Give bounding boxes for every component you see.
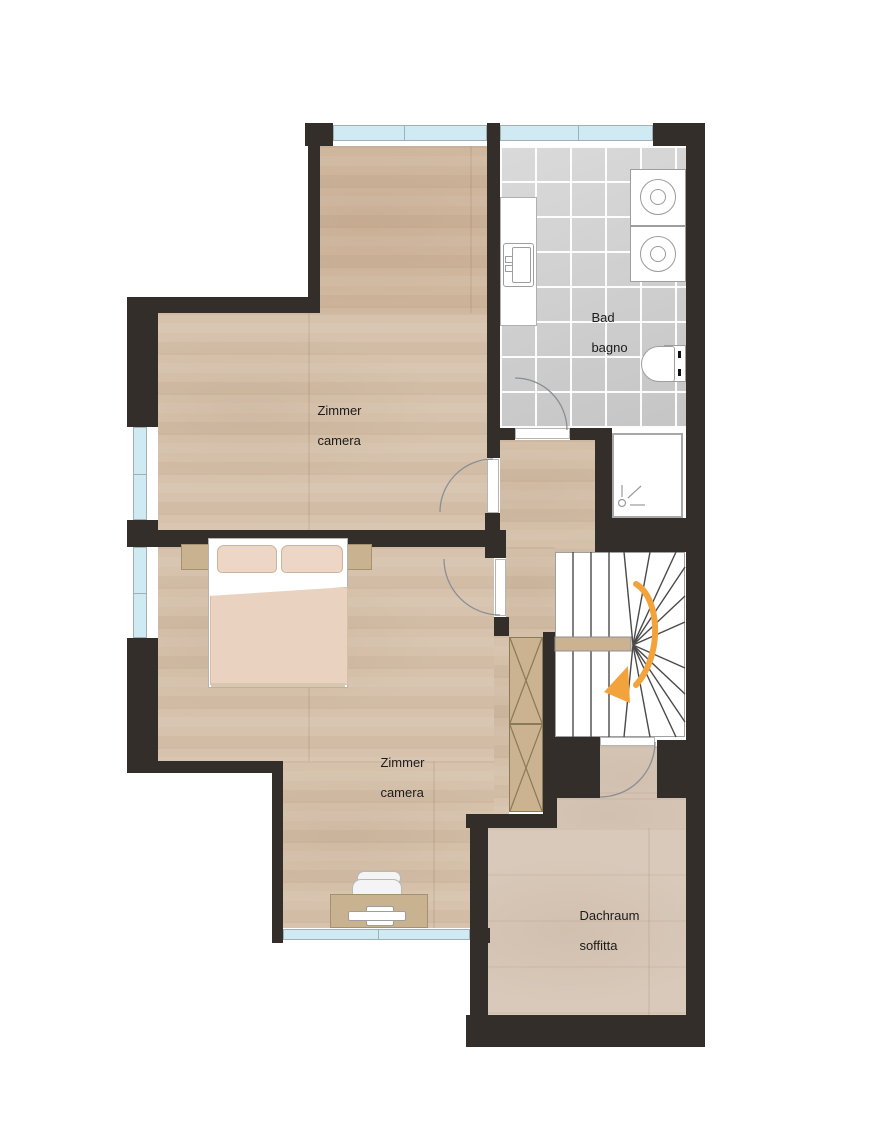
duvet [210,587,348,685]
pillow-left-icon [217,545,277,573]
stairwell [555,552,685,737]
wall-zimmer2-left-lower [272,773,283,943]
room-label-zimmer2: Zimmer camera [366,740,425,815]
pillow-right-icon [281,545,343,573]
washer-bottom-door-inner-icon [650,246,666,262]
room-label-zimmer1: Zimmer camera [303,388,362,463]
wall-zimmer2-step [127,761,283,773]
window-bottom [283,929,470,940]
room-label-line: Dachraum [579,908,639,923]
window-left-upper [133,427,147,520]
wardrobe-lower [509,724,543,812]
wall-above-door2 [485,547,506,558]
floor-dachraum-door-area [600,746,657,798]
faucet-handle-icon [505,265,513,272]
door-leaf-zimmer1 [487,459,499,513]
wall-left-block-b [127,520,158,547]
door-leaf-bathroom [515,428,570,439]
wall-top-pillar [487,123,500,146]
wall-stairs-bottom [555,737,600,798]
room-label-line: Zimmer [380,755,424,770]
wall-left-block-c [127,638,158,773]
room-label-line: camera [317,433,360,448]
room-label-line: soffitta [579,938,617,953]
wall-bottom [466,1015,705,1047]
shower [612,433,683,518]
window-top-left [333,125,487,141]
floor-hall-pocket [506,547,555,637]
faucet-icon [505,256,513,263]
bed-foot [211,683,345,687]
window-top-right [500,125,653,141]
toilet-bowl [641,346,675,382]
wall-right [686,123,705,1047]
washer-top-door-inner-icon [650,189,666,205]
floor-zimmer1-upper [320,146,487,313]
wall-below-door2 [494,617,509,636]
room-label-bad: Bad bagno [577,295,628,370]
room-label-line: Bad [591,310,614,325]
room-label-line: camera [380,785,423,800]
wall-right-notch [657,740,705,798]
floor-dachraum-upper [557,798,686,828]
floor-landing [500,440,595,552]
wall-zimmer1-left-top [308,123,320,313]
wall-zimmer2-window-end [470,928,490,943]
desk-paper-icon [348,911,406,921]
wall-bath-divider [487,146,500,458]
wall-bath-bottom-a [500,428,515,440]
window-left-lower [133,547,147,638]
room-label-line: bagno [591,340,627,355]
floor-plan: Zimmer camera Bad bagno Zimmer camera Da… [0,0,889,1142]
double-bed [208,538,348,688]
room-label-line: Zimmer [317,403,361,418]
room-label-dachraum: Dachraum soffitta [565,893,639,968]
wardrobe-upper [509,637,543,724]
nightstand-right [344,544,372,570]
toilet-hinge-icon [678,369,681,376]
door-leaf-zimmer2 [495,559,506,616]
wall-below-shower [595,518,686,552]
vanity-sink-basin [512,247,531,283]
door-leaf-dachraum [600,737,655,746]
toilet-hinge-icon [678,351,681,358]
floor-zimmer2-strip [494,636,509,814]
wall-left-block-a [127,297,158,427]
